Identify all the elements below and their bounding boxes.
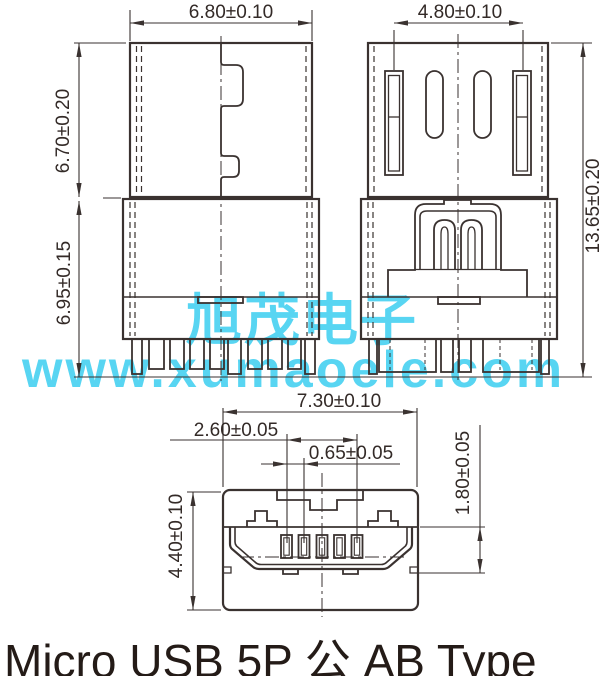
dim-total-height: 13.65±0.20 <box>583 159 605 254</box>
dim-shell-height: 6.70±0.20 <box>53 89 75 173</box>
dim-shell-width: 6.80±0.10 <box>189 2 273 24</box>
dim-pin-span: 2.60±0.05 <box>194 420 278 442</box>
dim-pin-pitch: 0.65±0.05 <box>309 443 393 465</box>
drawing-title: Micro USB 5P 公 AB Type <box>4 625 537 676</box>
dim-face-width: 7.30±0.10 <box>297 391 381 413</box>
side-view <box>361 34 557 381</box>
face-view <box>223 473 418 617</box>
technical-drawing-page: 旭茂电子 www.xumaoele.com <box>0 0 607 676</box>
dim-slot-spacing: 4.80±0.10 <box>418 2 502 24</box>
dimension-lines <box>74 10 592 610</box>
dim-body-height: 6.95±0.15 <box>54 241 76 325</box>
front-view <box>123 36 319 381</box>
connector-drawing-svg <box>0 0 607 676</box>
dim-face-height: 4.40±0.10 <box>166 494 188 578</box>
dim-opening-height: 1.80±0.05 <box>453 431 475 515</box>
